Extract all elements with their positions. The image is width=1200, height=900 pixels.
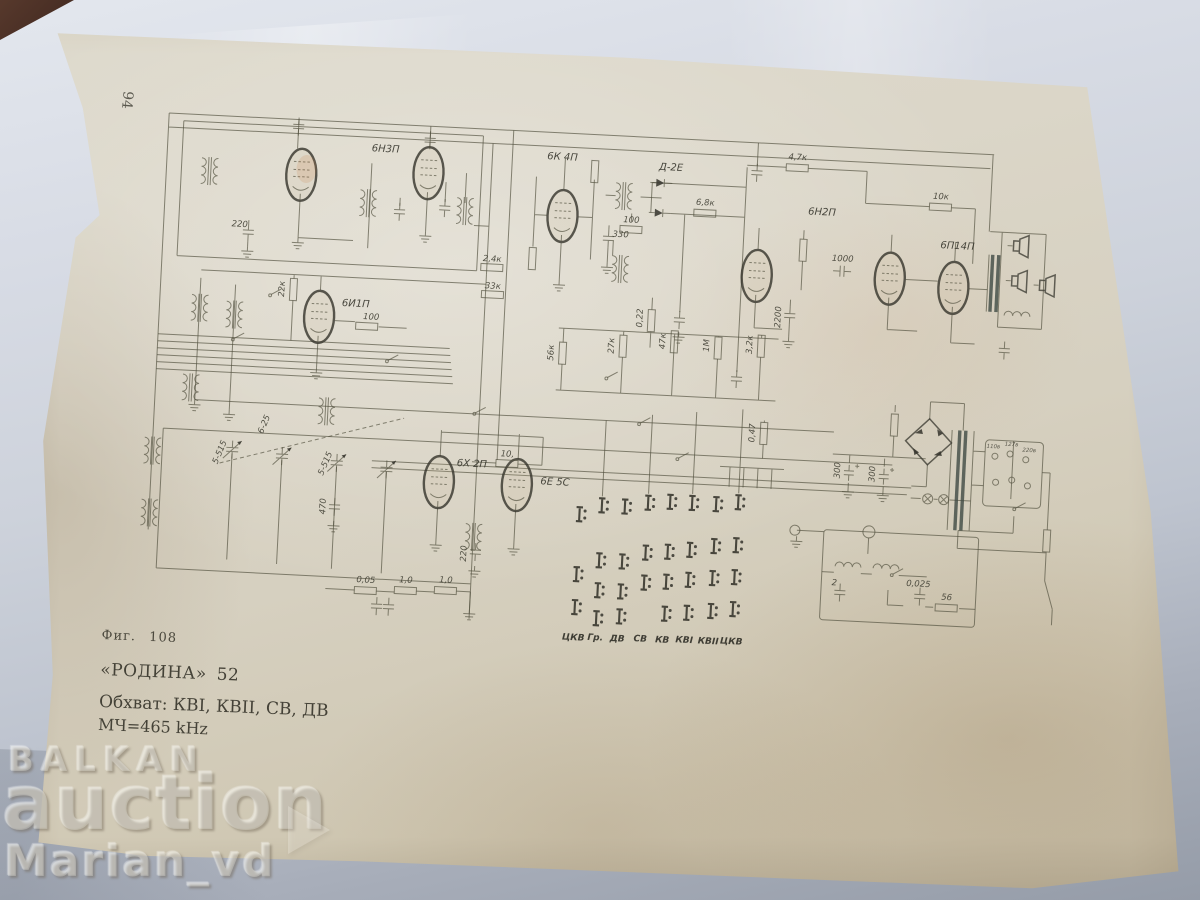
value-label: 56 (941, 593, 953, 604)
band-label: ЦКВ (720, 637, 743, 648)
tube-driver (873, 252, 906, 305)
value-label: 22к (277, 280, 288, 297)
tube-label: 6И1П (342, 298, 371, 310)
band-label: СВ (633, 634, 647, 645)
voltage-label: 127в (1004, 442, 1018, 449)
value-label: 4,7к (788, 152, 808, 163)
antenna-coil (201, 157, 219, 186)
speaker-icon (1013, 235, 1029, 258)
voltage-label: 110в (986, 444, 1000, 451)
value-label: 5-515 (316, 450, 335, 477)
radio-circuit-schematic: 6Н3П 6К 4П Д-2Е 6Н2П 6П14П 6И1П 6Х 2П 6Е… (0, 0, 1200, 900)
tube-label: 6Е 5С (540, 476, 570, 488)
value-label: 220 (231, 219, 248, 230)
speaker-icon (1011, 270, 1027, 293)
rf-coil (359, 189, 377, 218)
voltage-label: 220в (1022, 448, 1036, 455)
pilot-lamp-icon (922, 494, 932, 504)
value-label: 330 (612, 230, 629, 241)
value-label: 33к (485, 281, 502, 292)
trimmer-capacitors (222, 440, 396, 479)
band-label: КВII (697, 636, 719, 647)
value-label: 10к (933, 192, 950, 203)
tube-label: 6Х 2П (456, 458, 487, 471)
band-label: ЦКВ (562, 633, 585, 644)
voltage-selector-labels: 110в 127в 220в (986, 441, 1036, 455)
band-label: ДВ (608, 634, 625, 645)
value-label: 0,47 (747, 423, 758, 443)
band-label: КВ (655, 635, 670, 646)
value-label: 0,22 (635, 308, 646, 327)
tube-6n2p (740, 249, 773, 302)
oscillator-coil (182, 373, 200, 402)
speakers (1011, 235, 1057, 297)
value-label: 2 (831, 578, 837, 588)
band-label: КВI (675, 635, 694, 646)
tube-label: Д-2Е (658, 162, 684, 174)
tube-6i1p (303, 290, 336, 343)
value-label: 2200 (773, 306, 784, 328)
tube-6k4p (546, 189, 579, 242)
value-label: 10, (500, 449, 514, 460)
diode-icon (650, 178, 672, 187)
value-label: 220 (459, 545, 470, 562)
value-label: 300 (833, 462, 844, 479)
tube-label: 6К 4П (547, 151, 579, 164)
value-label: 6-25 (256, 414, 273, 436)
if-transformer (615, 182, 633, 211)
value-label: 6,8к (696, 198, 716, 209)
band-label: Гр. (587, 633, 603, 644)
value-label: 47к (658, 332, 669, 349)
tube-6p14p (937, 261, 970, 314)
bridge-rectifier (904, 418, 952, 466)
pilot-lamp-icon (938, 494, 948, 504)
figure-caption: Фиг. 108 «РОДИНА» 52 Обхват: КВI, КВII, … (98, 628, 332, 743)
tube-label: 6П14П (940, 240, 975, 253)
oscillator-coil (318, 397, 336, 426)
value-label: 1М (702, 338, 713, 352)
transformers-coils (140, 155, 1036, 579)
value-label: 56к (546, 344, 557, 361)
tube-label: 6Н3П (372, 143, 401, 155)
speaker-coil (1004, 311, 1030, 317)
band-labels: ЦКВ Гр. ДВ СВ КВ КВI КВII ЦКВ (562, 629, 743, 652)
radio-model-title: «РОДИНА» 52 (100, 660, 330, 689)
value-label: 1000 (832, 254, 854, 265)
band-switch-matrix (571, 487, 746, 632)
photo-scene: 6Н3П 6К 4П Д-2Е 6Н2П 6П14П 6И1П 6Х 2П 6Е… (0, 0, 1200, 900)
value-label: 27к (607, 337, 618, 354)
speaker-icon (1039, 274, 1055, 297)
value-label: 470 (318, 498, 329, 515)
value-label: 0,05 (356, 575, 375, 586)
if-transformer (611, 255, 629, 284)
value-label: 2,4к (483, 254, 503, 265)
page-number: 94 (118, 90, 135, 109)
fuse (1043, 530, 1051, 552)
value-label: 1,0 (439, 575, 453, 586)
diode-icon (649, 208, 671, 217)
value-label: 100 (623, 215, 640, 226)
value-label: 300 (867, 466, 878, 483)
tube-6n3p-b (412, 146, 445, 199)
value-label: 1,0 (399, 575, 413, 586)
motor-coil (835, 562, 861, 568)
value-label: 3,2к (745, 334, 756, 354)
motor-coil (873, 564, 899, 570)
value-label: 0,025 (906, 579, 931, 590)
tube-6e5s-magic-eye (501, 458, 534, 511)
tube-label: 6Н2П (808, 206, 837, 218)
value-label: 100 (363, 312, 380, 323)
